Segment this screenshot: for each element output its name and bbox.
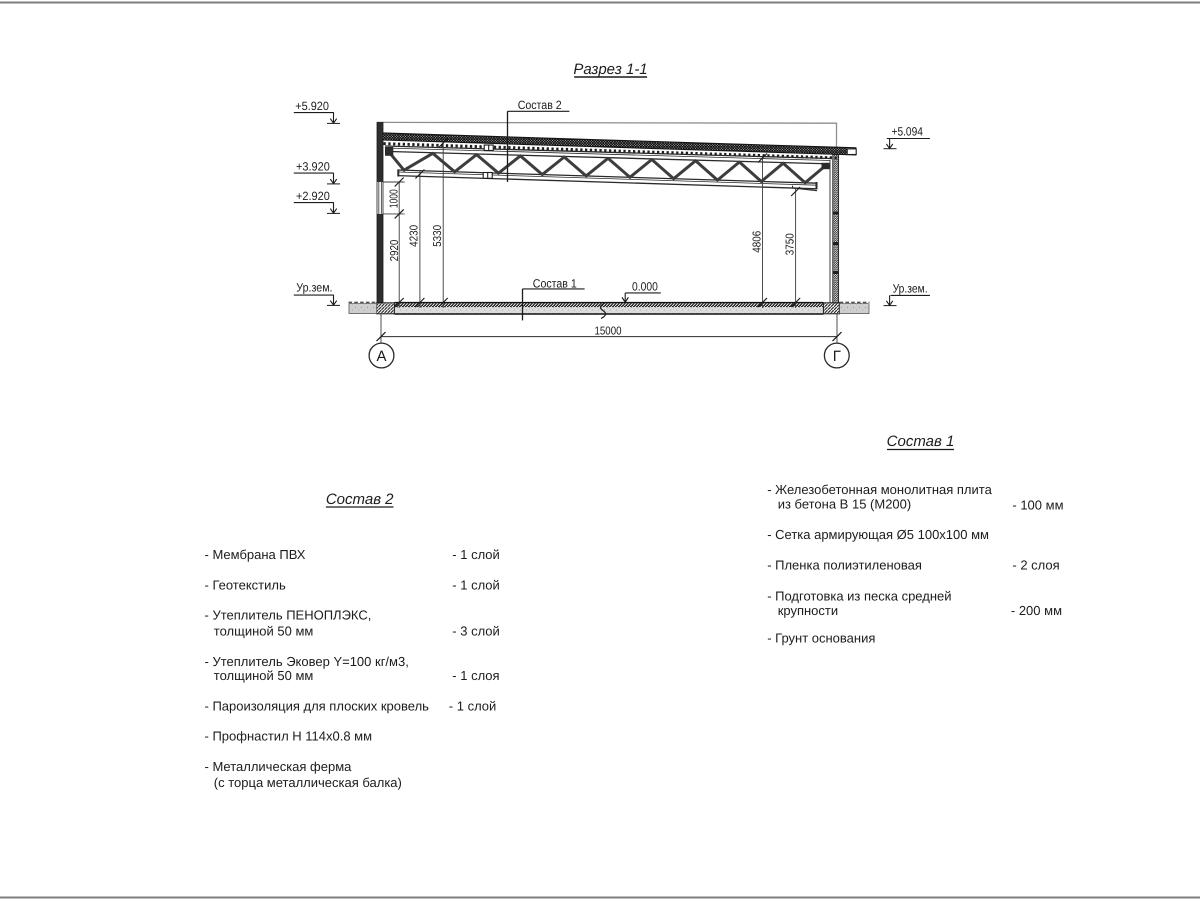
svg-text:- 3 слой: - 3 слой <box>452 624 500 639</box>
svg-text:- Пленка полиэтиленовая: - Пленка полиэтиленовая <box>767 558 922 573</box>
svg-text:Разрез 1-1: Разрез 1-1 <box>573 61 647 78</box>
svg-text:- Мембрана ПВХ: - Мембрана ПВХ <box>205 547 306 562</box>
svg-text:3750: 3750 <box>784 233 796 255</box>
svg-text:- Утеплитель Эковер Y=100 кг/м: - Утеплитель Эковер Y=100 кг/м3, <box>205 654 409 669</box>
svg-text:(с торца металлическая балка): (с торца металлическая балка) <box>214 775 402 790</box>
svg-text:0.000: 0.000 <box>632 280 658 294</box>
svg-text:- Профнастил Н 114х0.8 мм: - Профнастил Н 114х0.8 мм <box>205 729 373 744</box>
svg-text:- 1 слой: - 1 слой <box>449 698 497 713</box>
svg-text:+3.920: +3.920 <box>296 159 330 173</box>
svg-text:толщиной 50 мм: толщиной 50 мм <box>214 624 314 639</box>
svg-text:+2.920: +2.920 <box>296 189 330 203</box>
svg-text:Состав 1: Состав 1 <box>533 276 577 290</box>
svg-text:4806: 4806 <box>751 231 763 253</box>
svg-text:- Железобетонная монолитная п: - Железобетонная монолитная плита <box>767 482 992 497</box>
svg-text:- Утеплитель ПЕНОПЛЭКС,: - Утеплитель ПЕНОПЛЭКС, <box>205 608 372 623</box>
svg-text:- 2 слоя: - 2 слоя <box>1012 558 1059 573</box>
svg-text:крупности: крупности <box>778 603 838 618</box>
svg-text:+5.094: +5.094 <box>892 125 924 139</box>
svg-text:- 100 мм: - 100 мм <box>1012 497 1063 512</box>
svg-text:- 1 слой: - 1 слой <box>452 577 500 592</box>
svg-text:Состав 2: Состав 2 <box>326 491 394 508</box>
svg-text:Состав 2: Состав 2 <box>518 98 562 112</box>
svg-text:- Пароизоляция для плоских кро: - Пароизоляция для плоских кровель <box>205 698 430 713</box>
svg-text:5330: 5330 <box>432 225 444 247</box>
svg-text:- 200 мм: - 200 мм <box>1011 603 1062 618</box>
svg-text:- 1 слоя: - 1 слоя <box>452 668 499 683</box>
svg-text:Ур.зем.: Ур.зем. <box>893 282 928 296</box>
svg-text:Состав 1: Состав 1 <box>887 433 955 450</box>
svg-text:- 1 слой: - 1 слой <box>452 547 500 562</box>
svg-text:А: А <box>376 348 386 365</box>
svg-text:+5.920: +5.920 <box>295 99 329 113</box>
svg-text:15000: 15000 <box>595 325 622 337</box>
svg-text:2920: 2920 <box>389 240 401 262</box>
svg-text:- Металлическая ферма: - Металлическая ферма <box>205 759 353 774</box>
svg-text:- Геотекстиль: - Геотекстиль <box>205 577 286 592</box>
svg-text:Г: Г <box>833 348 841 365</box>
svg-text:- Подготовка из песка средней: - Подготовка из песка средней <box>767 588 951 603</box>
svg-text:4230: 4230 <box>409 225 421 247</box>
svg-text:Ур.зем.: Ур.зем. <box>296 281 332 295</box>
svg-text:- Сетка армирующая Ø5 100х100: - Сетка армирующая Ø5 100х100 мм <box>767 527 989 542</box>
svg-text:- Грунт основания: - Грунт основания <box>767 631 875 646</box>
svg-text:из бетона В 15 (М200): из бетона В 15 (М200) <box>778 496 912 511</box>
svg-text:1000: 1000 <box>389 189 401 208</box>
svg-text:толщиной 50 мм: толщиной 50 мм <box>214 668 314 683</box>
